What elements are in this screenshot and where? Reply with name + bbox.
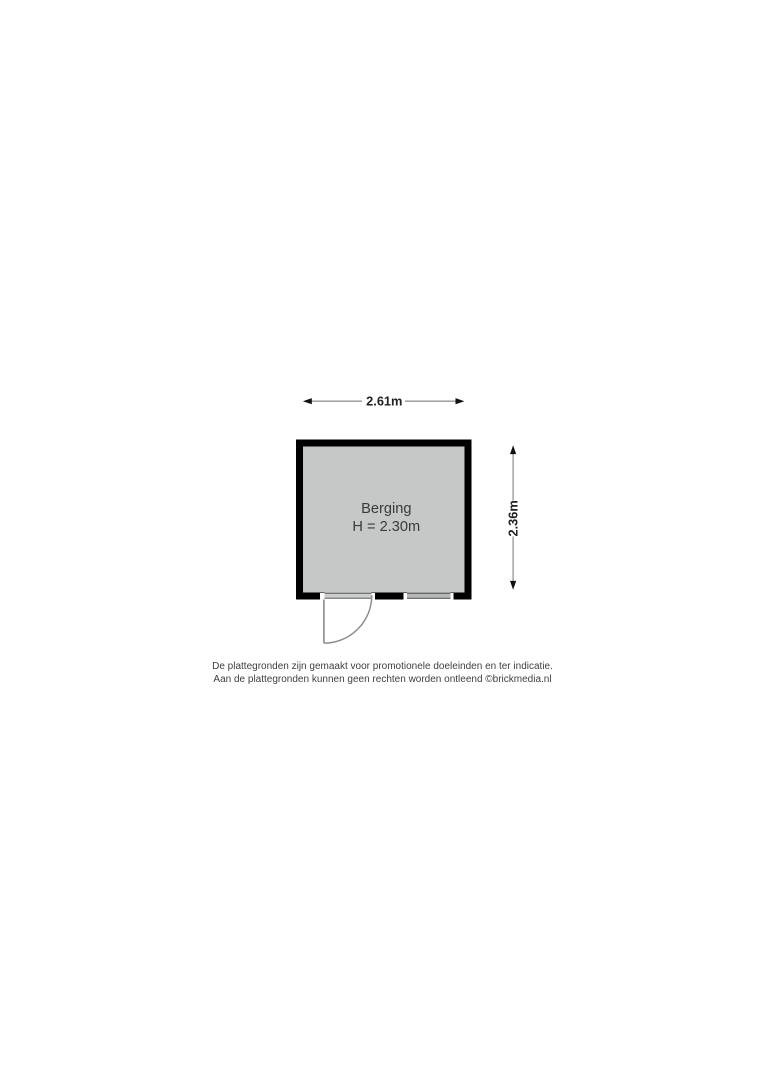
svg-text:2.61m: 2.61m: [366, 393, 402, 408]
svg-text:2.36m: 2.36m: [505, 500, 520, 536]
svg-text:Aan de plattegronden kunnen ge: Aan de plattegronden kunnen geen rechten…: [213, 674, 551, 685]
svg-text:Berging: Berging: [361, 501, 411, 517]
svg-text:H = 2.30m: H = 2.30m: [352, 519, 420, 535]
svg-text:De plattegronden zijn gemaakt: De plattegronden zijn gemaakt voor promo…: [212, 661, 553, 672]
